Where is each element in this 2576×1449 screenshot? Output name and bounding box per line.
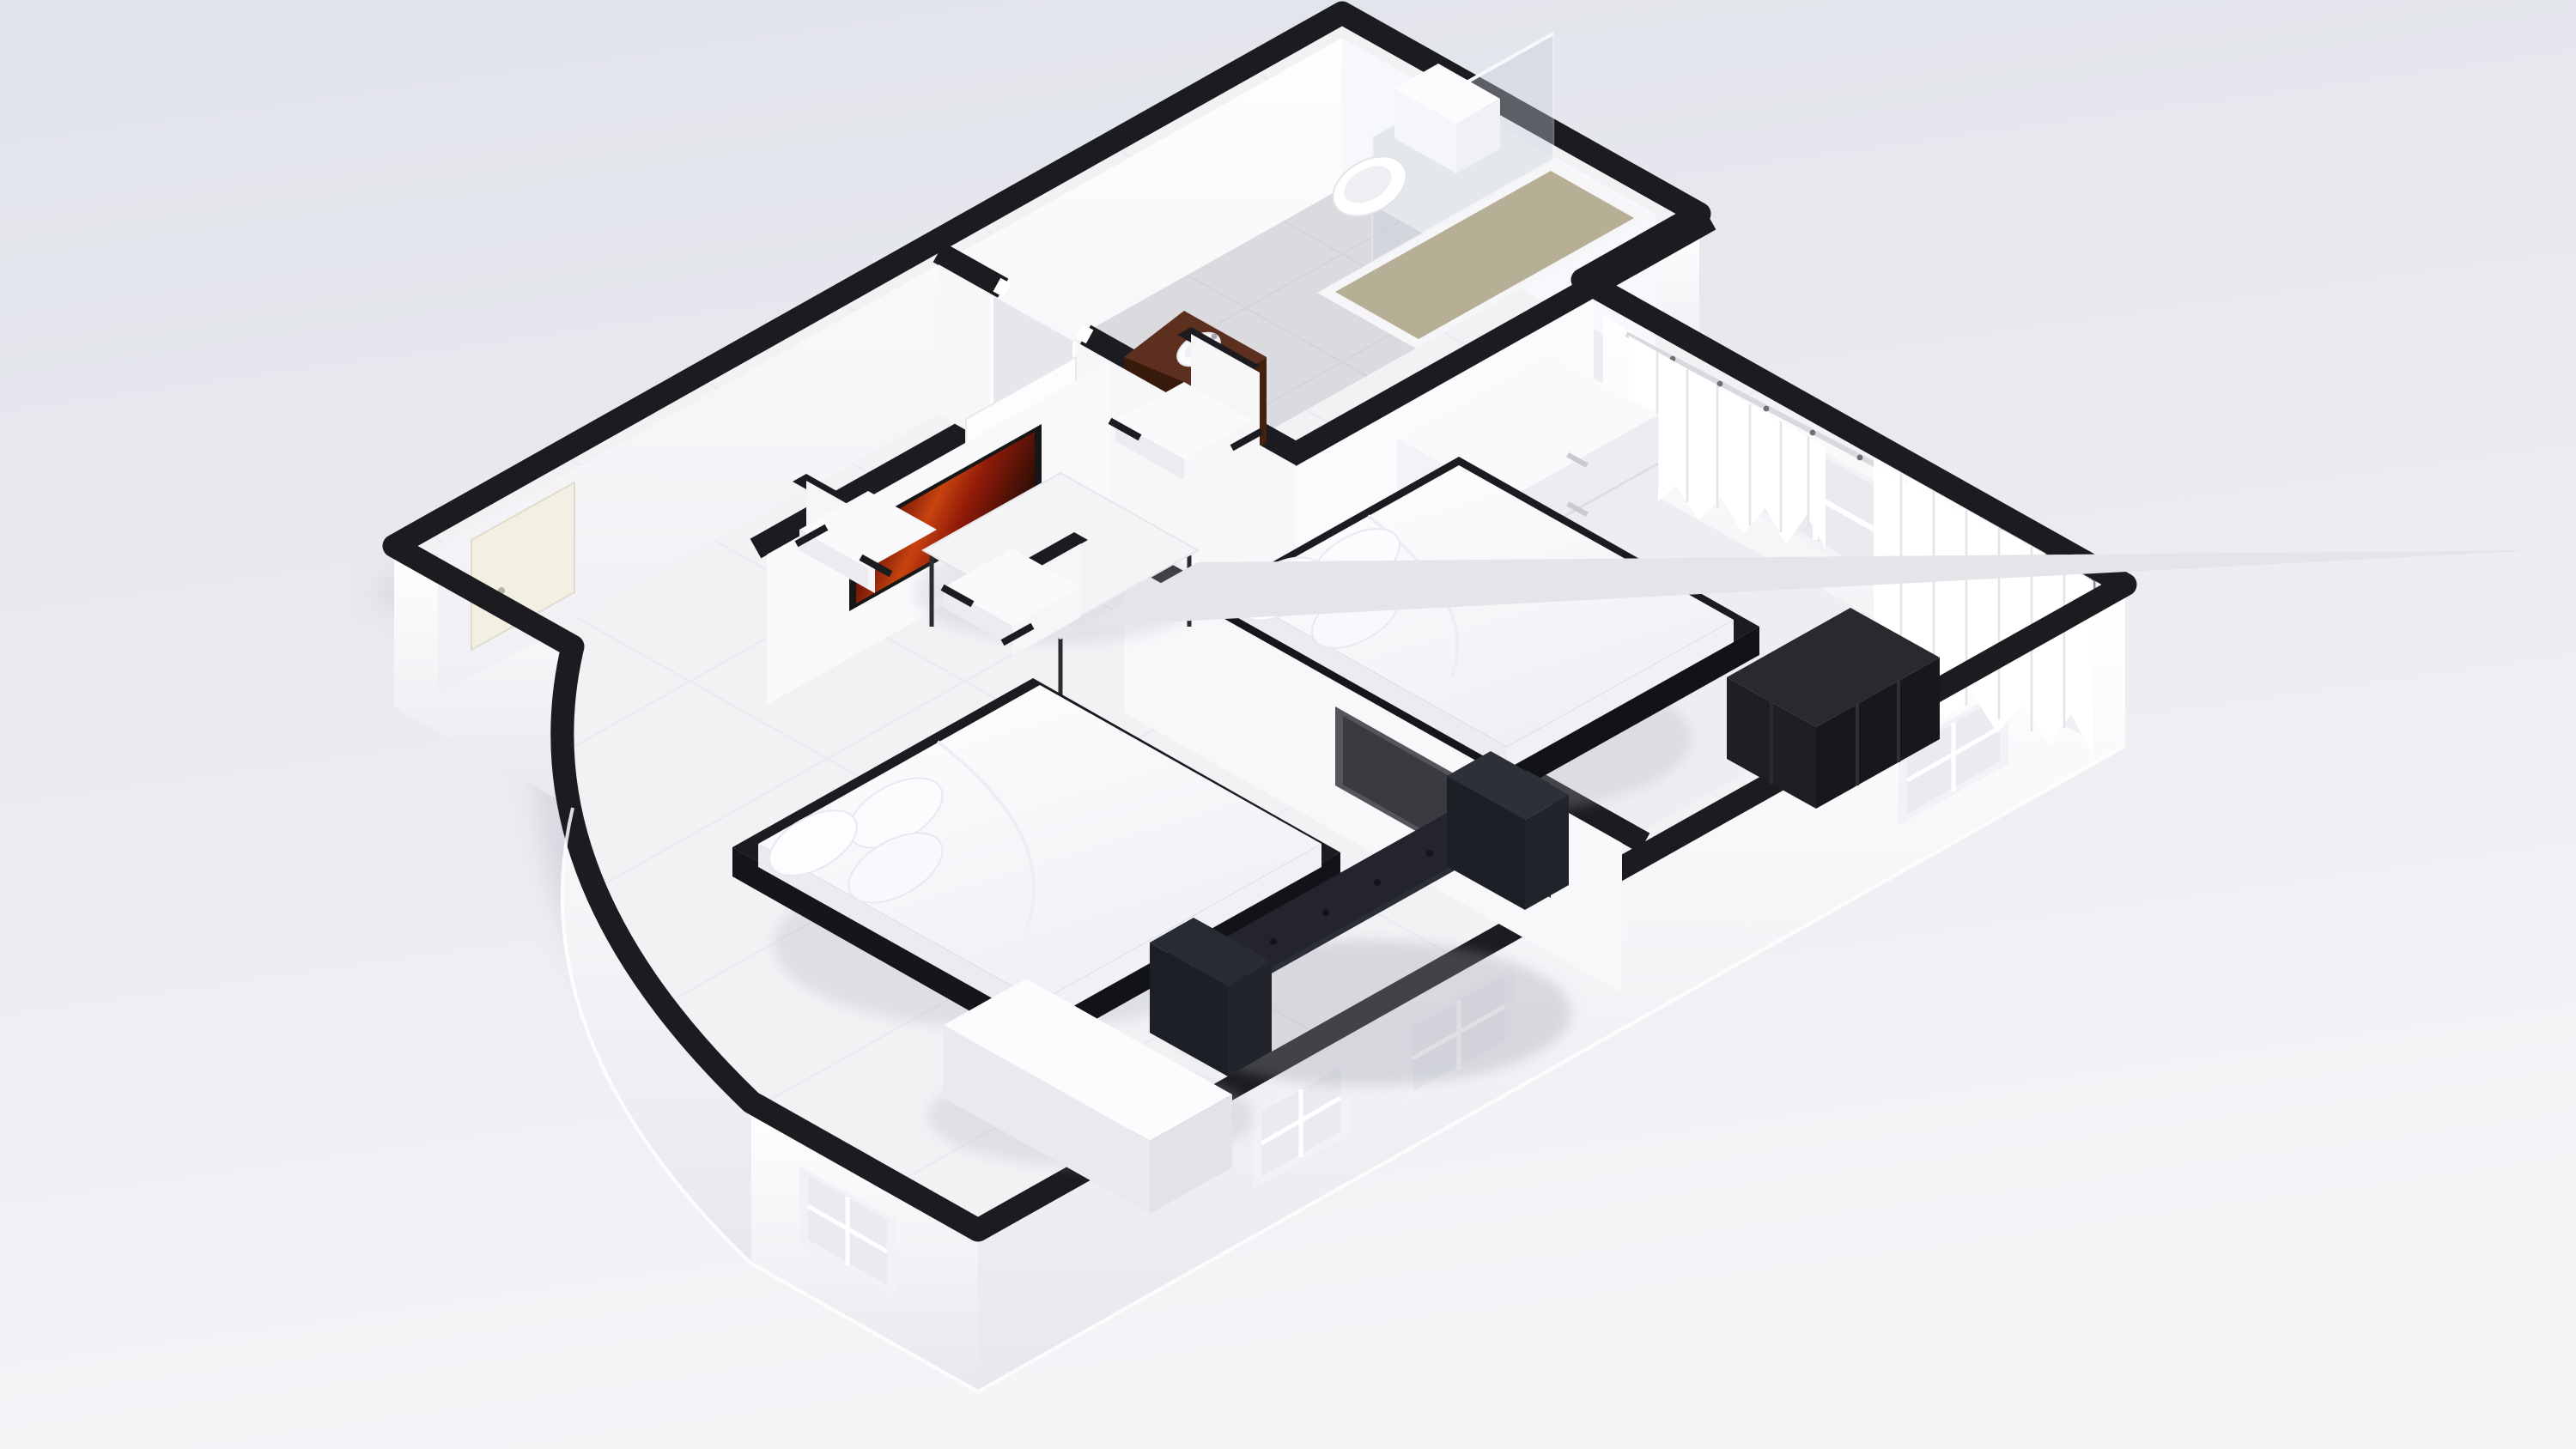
floor-plan-render bbox=[0, 0, 2576, 1449]
faucet bbox=[1212, 334, 1218, 340]
